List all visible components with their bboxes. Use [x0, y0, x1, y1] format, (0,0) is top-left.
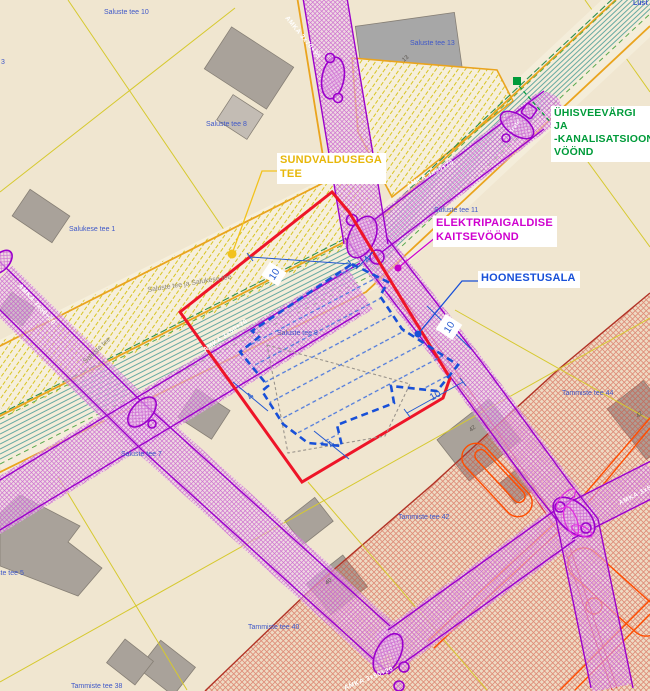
- callout-uhisveevargi-voond: ÜHISVEEVÄRGI JA -KANALISATSIOONI VÖÖND: [551, 106, 650, 162]
- callout-sundvaldusega-tee: SUNDVALDUSEGA TEE: [277, 153, 386, 184]
- cable-pole: [502, 134, 510, 142]
- cable-pole: [334, 94, 343, 103]
- cable-pole: [394, 681, 404, 691]
- callout-line: HOONESTUSALA: [481, 272, 576, 286]
- map-canvas[interactable]: 10 4 10 10 4 4 AMKA 3x70+95 AMKA 3x50+70…: [0, 0, 650, 691]
- cable-pole: [148, 420, 156, 428]
- callout-line: -KANALISATSIOONI: [554, 133, 650, 146]
- callout-line: ELEKTRIPAIGALDISE: [436, 217, 553, 231]
- callout-line: SUNDVALDUSEGA: [280, 154, 382, 168]
- callout-line: VÖÖND: [554, 146, 650, 159]
- callout-line: TEE: [280, 168, 382, 182]
- electric-callout-dot: [395, 265, 402, 272]
- cable-pole: [399, 662, 409, 672]
- callout-hoonestusala: HOONESTUSALA: [478, 271, 580, 288]
- water-callout-dot: [513, 77, 521, 85]
- callout-elektripaigaldise-kaitsevoond: ELEKTRIPAIGALDISE KAITSEVÖÖND: [433, 216, 557, 247]
- callout-line: JA: [554, 120, 650, 133]
- plan-drawing: 10 4 10 10 4 4 AMKA 3x70+95 AMKA 3x50+70…: [0, 0, 650, 691]
- callout-line: KAITSEVÖÖND: [436, 231, 553, 245]
- cable-pole: [326, 54, 335, 63]
- building-area-callout-dot: [415, 331, 422, 338]
- road-callout-dot: [228, 250, 237, 259]
- callout-line: ÜHISVEEVÄRGI: [554, 107, 650, 120]
